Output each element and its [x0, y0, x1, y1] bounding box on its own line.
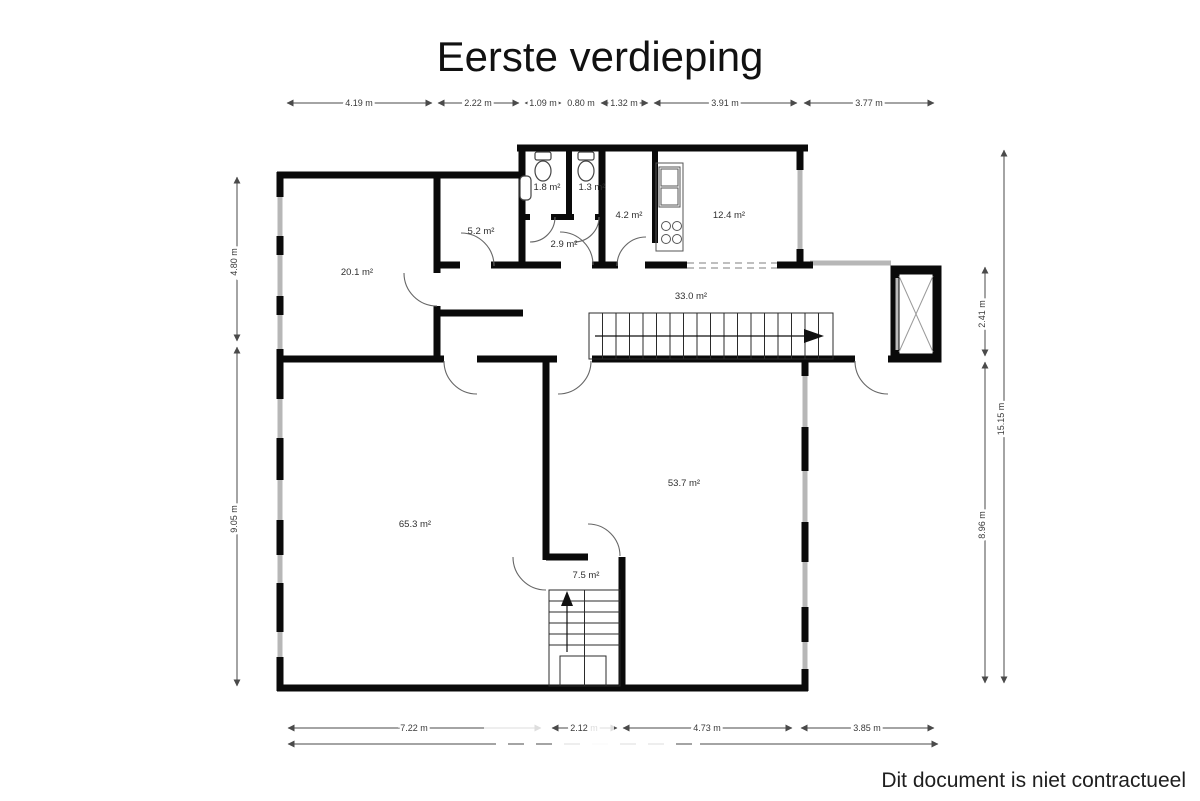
- room-label-4-2: 4.2 m²: [616, 210, 643, 221]
- door-room20: [404, 273, 437, 306]
- door-wc2: [574, 217, 599, 242]
- toilet-tank-icon: [535, 152, 551, 160]
- open-passage-dashed: [687, 263, 777, 268]
- staircase-main: [589, 313, 833, 359]
- room-label-53-7: 53.7 m²: [668, 478, 700, 489]
- floorplan-drawing: 20.1 m² 5.2 m² 1.8 m² 1.3 m² 2.9 m² 4.2 …: [0, 0, 1200, 801]
- door-hall-passage: [558, 361, 591, 394]
- room-label-1-3: 1.3 m²: [579, 182, 606, 193]
- dimensions-right: 2.41 m 8.96 m 15.15 m: [977, 150, 1006, 683]
- dim-bottom-4: 3.85 m: [853, 723, 881, 733]
- room-label-7-5: 7.5 m²: [573, 570, 600, 581]
- room-label-20-1: 20.1 m²: [341, 267, 373, 278]
- dim-top-4: 0.80 m: [567, 98, 595, 108]
- room-label-33-0: 33.0 m²: [675, 291, 707, 302]
- dim-top-6: 3.91 m: [711, 98, 739, 108]
- toilet-icon: [535, 161, 551, 181]
- stove-burner-icon: [673, 235, 682, 244]
- kitchen-sink-bowl: [661, 188, 678, 205]
- disclaimer-text: Dit document is niet contractueel: [881, 769, 1186, 793]
- watermark-blotch: [556, 737, 676, 750]
- dim-right-total: 15.15 m: [996, 403, 1006, 436]
- stove-burner-icon: [673, 222, 682, 231]
- door-room5-2: [461, 233, 494, 266]
- dim-left-2: 9.05 m: [229, 505, 239, 533]
- stair-arrow-icon: [804, 329, 824, 343]
- floorplan-page: Eerste verdieping: [0, 0, 1200, 801]
- room-label-12-4: 12.4 m²: [713, 210, 745, 221]
- room-label-2-9: 2.9 m²: [551, 239, 578, 250]
- room-label-65-3: 65.3 m²: [399, 519, 431, 530]
- dimensions-left: 4.80 m 9.05 m: [229, 177, 239, 686]
- dim-top-1: 4.19 m: [345, 98, 373, 108]
- dimensions-bottom: 7.22 m 2.12 m 4.73 m 3.85 m: [288, 716, 938, 752]
- dimensions-top: 4.19 m 2.22 m 1.09 m 0.80 m 1.32 m 3.91 …: [287, 98, 934, 108]
- door-room4-2: [617, 237, 646, 266]
- stair2-landing: [560, 656, 606, 686]
- kitchen-sink-icon: [659, 167, 680, 207]
- dim-top-5: 1.32 m: [610, 98, 638, 108]
- elevator-shaft: [895, 270, 937, 358]
- door-room53: [855, 361, 888, 394]
- kitchen-fixtures: [656, 163, 683, 251]
- toilet-icon: [578, 161, 594, 181]
- dim-right-2: 8.96 m: [977, 511, 987, 539]
- stove-burner-icon: [662, 222, 671, 231]
- room-label-5-2: 5.2 m²: [468, 226, 495, 237]
- dim-bottom-1: 7.22 m: [400, 723, 428, 733]
- staircase-small: [549, 590, 620, 686]
- watermark-blotch: [484, 716, 548, 736]
- dim-bottom-3: 4.73 m: [693, 723, 721, 733]
- stove-burner-icon: [662, 235, 671, 244]
- toilet-tank-icon: [578, 152, 594, 160]
- dim-top-2: 2.22 m: [464, 98, 492, 108]
- room-label-1-8: 1.8 m²: [534, 182, 561, 193]
- door-arcs: [404, 217, 888, 590]
- kitchen-sink-bowl: [661, 169, 678, 186]
- door-stairroom-left: [513, 557, 546, 590]
- watermark-blotch: [588, 718, 614, 752]
- door-room65: [444, 361, 477, 394]
- dim-top-3: 1.09 m: [529, 98, 557, 108]
- dim-left-1: 4.80 m: [229, 248, 239, 276]
- dim-right-1: 2.41 m: [977, 300, 987, 328]
- door-stairroom-top: [588, 524, 620, 556]
- dim-top-7: 3.77 m: [855, 98, 883, 108]
- stair2-arrow-icon: [561, 591, 573, 606]
- sink-icon: [520, 176, 531, 200]
